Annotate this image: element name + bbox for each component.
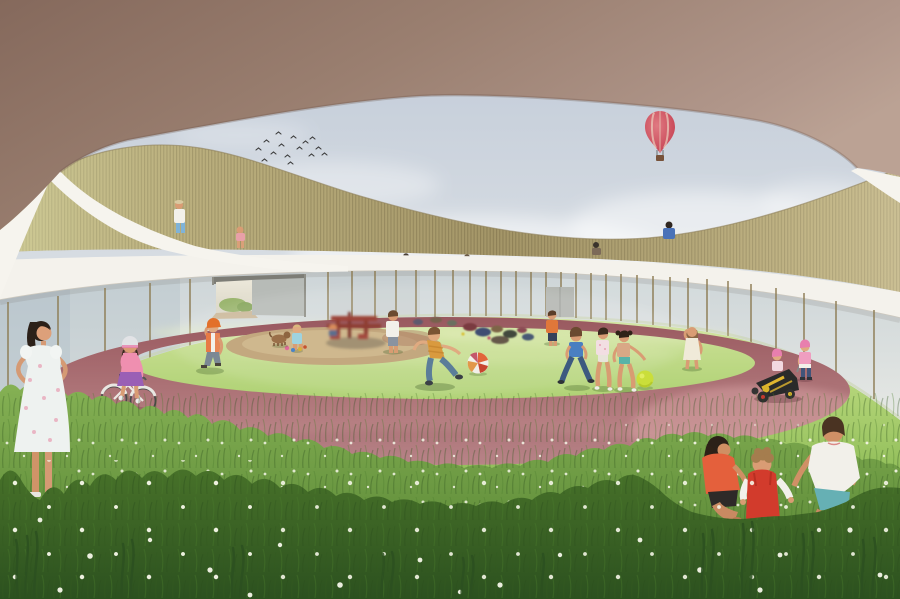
balloon-basket: [656, 155, 664, 161]
yellow-ball: [637, 371, 654, 391]
architectural-rendering: [0, 0, 900, 599]
foreground-meadow-front: [0, 460, 900, 599]
